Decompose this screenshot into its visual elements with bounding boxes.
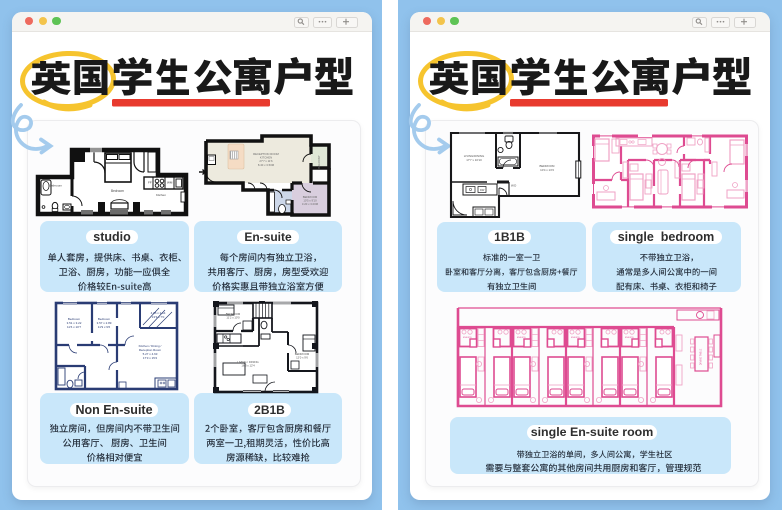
svg-text:11'9 x 9'6: 11'9 x 9'6 <box>98 325 111 329</box>
svg-text:8.40 x 3.50M: 8.40 x 3.50M <box>258 163 275 167</box>
svg-text:Bathroom: Bathroom <box>49 184 63 188</box>
svg-text:WM: WM <box>167 181 173 185</box>
svg-text:FF: FF <box>148 181 152 185</box>
svg-text:DW: DW <box>480 188 485 192</box>
svg-text:17'3 x 15'2: 17'3 x 15'2 <box>143 356 158 360</box>
svg-text:10'4 x 13'3: 10'4 x 13'3 <box>540 168 554 172</box>
svg-text:Bedroom: Bedroom <box>111 189 124 193</box>
svg-text:17'7 x 10'10: 17'7 x 10'10 <box>466 158 482 162</box>
svg-text:Kitchen: Kitchen <box>156 193 166 197</box>
svg-text:13'3 x 7'0: 13'3 x 7'0 <box>152 315 165 319</box>
svg-text:DINING TABLE: DINING TABLE <box>700 348 703 365</box>
svg-text:BALCONY: BALCONY <box>317 155 321 169</box>
svg-text:ENSUITE: ENSUITE <box>571 337 580 339</box>
svg-text:ENSUITE: ENSUITE <box>517 337 526 339</box>
svg-text:W.D: W.D <box>511 184 516 188</box>
svg-text:3.20 x 3.00M: 3.20 x 3.00M <box>302 202 319 206</box>
svg-text:11'6 x 10'7: 11'6 x 10'7 <box>67 325 81 329</box>
svg-text:16'3 x 12'4: 16'3 x 12'4 <box>241 364 255 368</box>
svg-text:ENSUITE: ENSUITE <box>625 337 634 339</box>
svg-text:11'2 x 10'0: 11'2 x 10'0 <box>226 316 240 320</box>
svg-text:ENSUITE: ENSUITE <box>463 337 472 339</box>
svg-text:12'0 x 9'6: 12'0 x 9'6 <box>296 356 308 360</box>
